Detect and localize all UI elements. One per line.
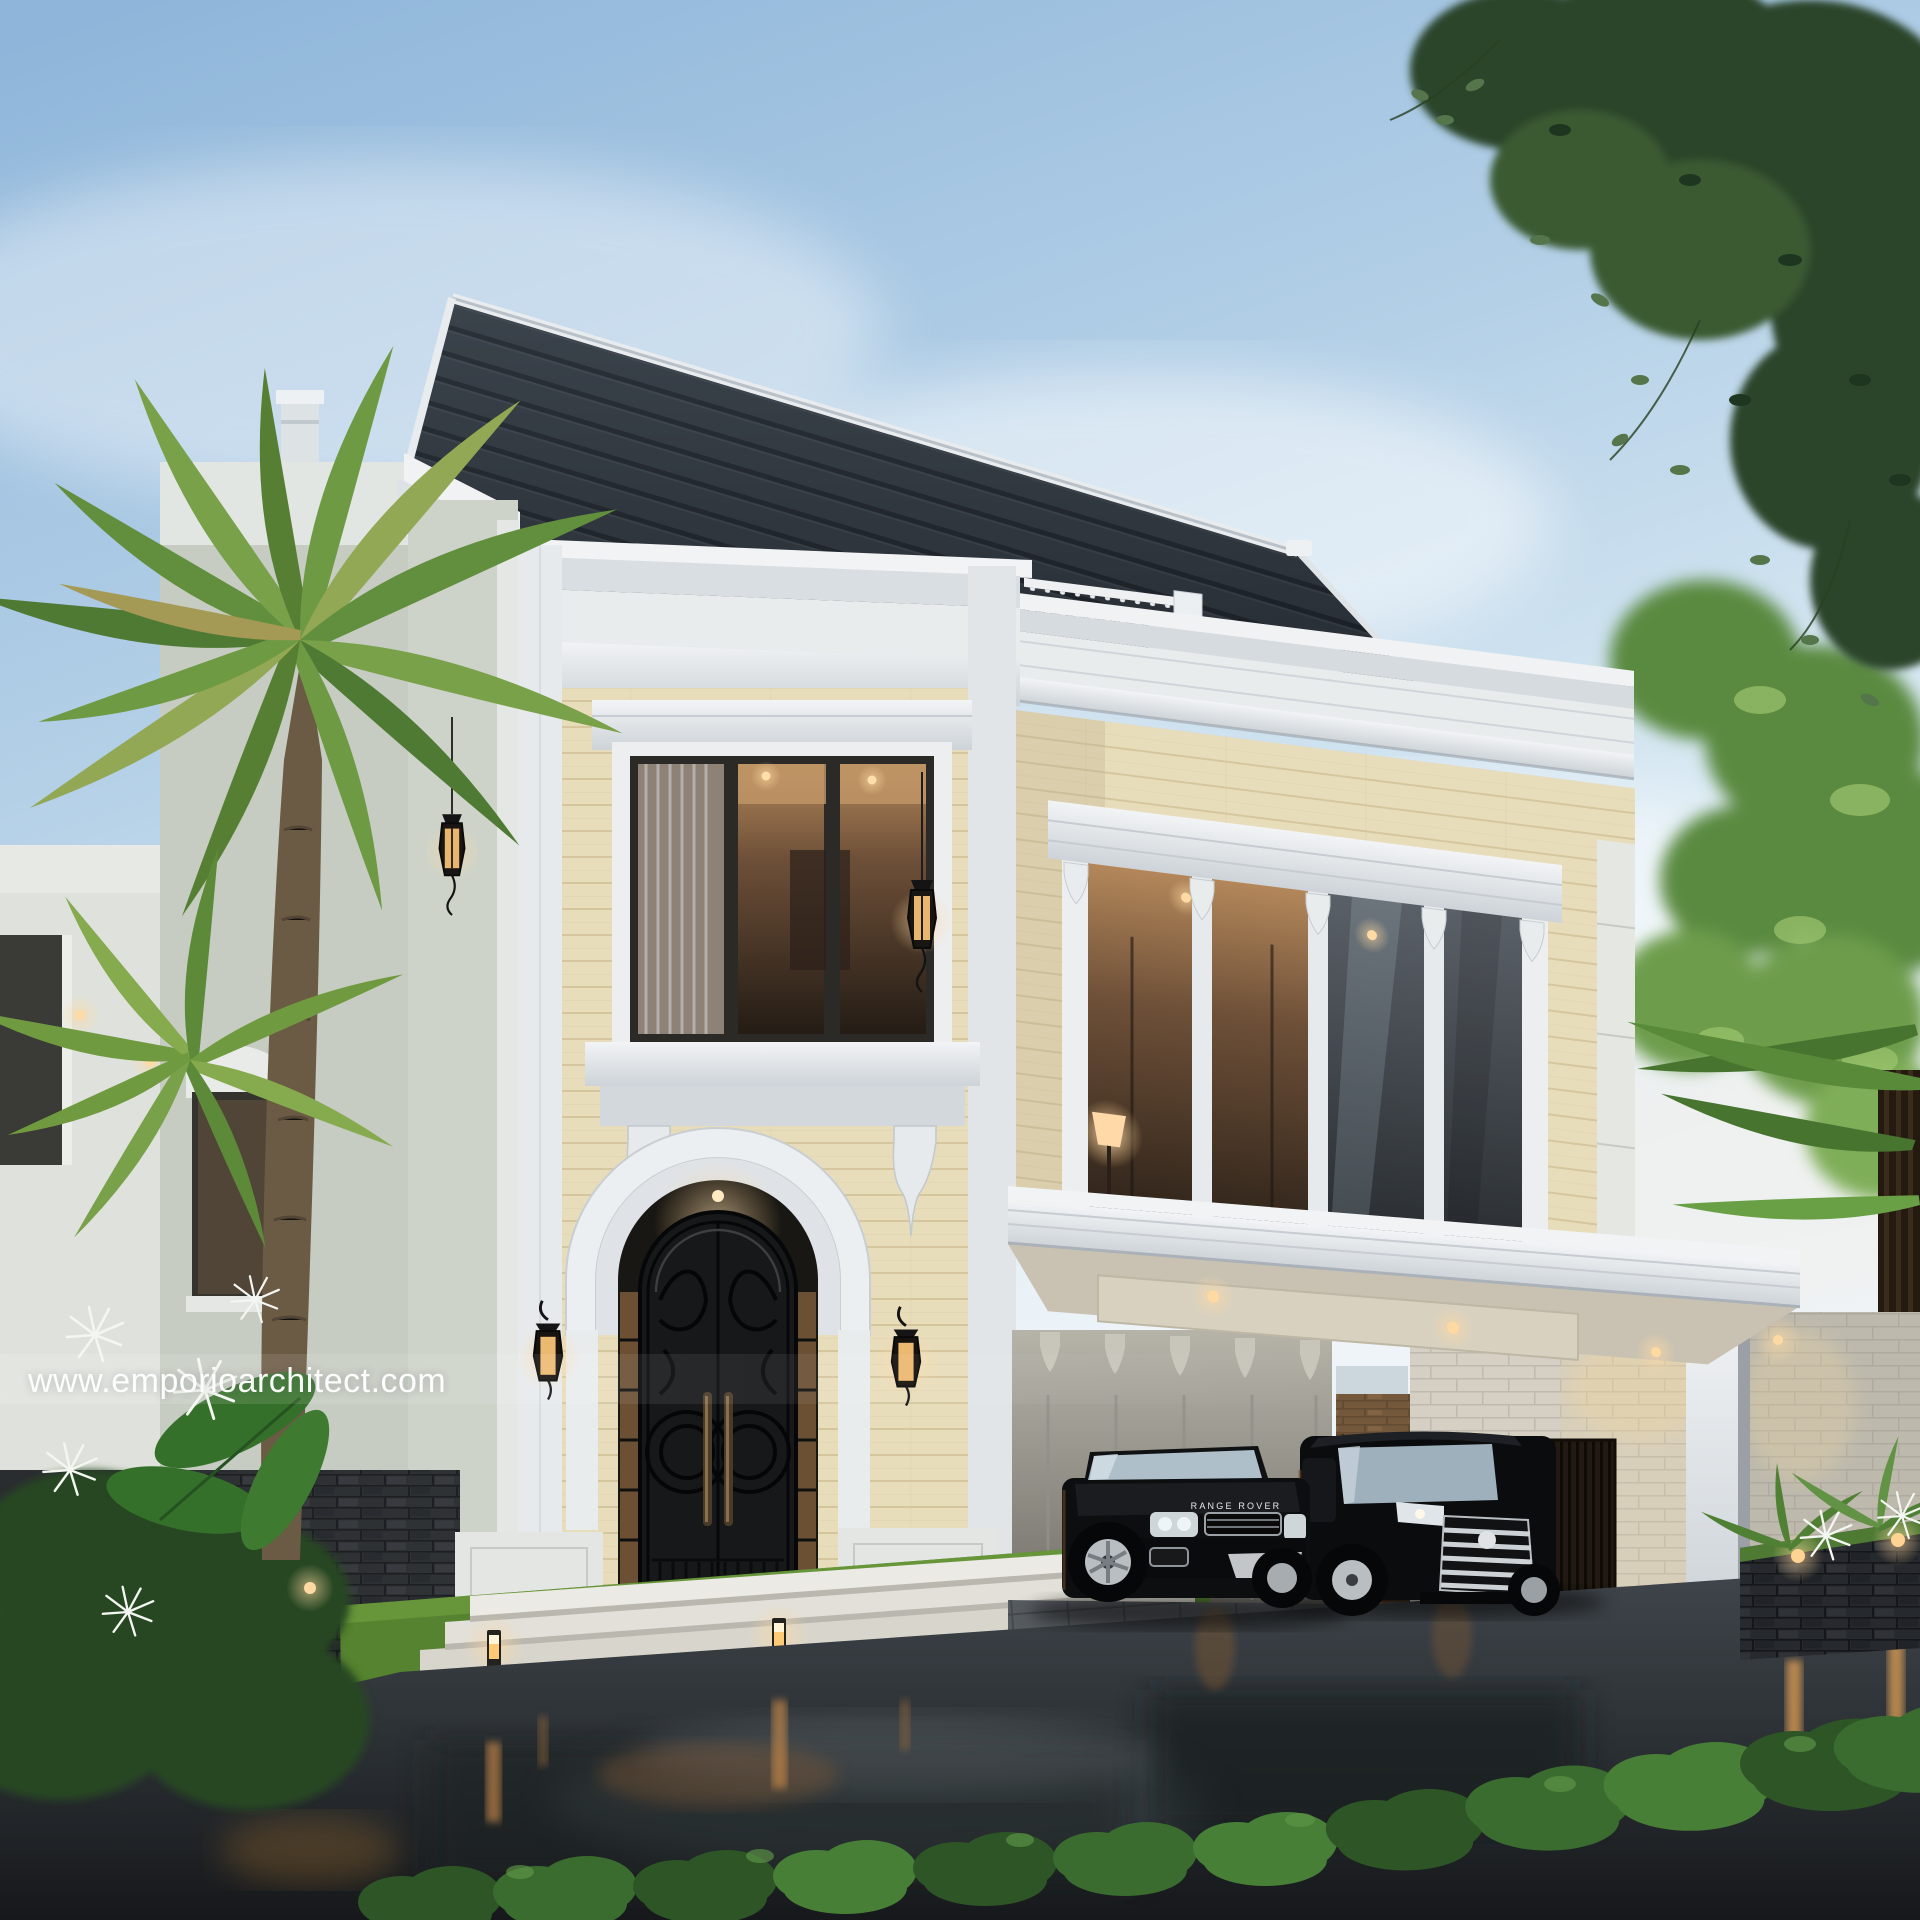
vehicle-alphard [1300,1431,1560,1616]
render-canvas: RANGE ROVER [0,0,1920,1920]
tower-window [592,700,972,1048]
architectural-render: RANGE ROVER [0,0,1920,1920]
neighbor-house [0,845,178,1560]
rr-grille [1205,1513,1281,1535]
tower-pilaster-right [968,566,1016,1686]
vehicles: RANGE ROVER [1030,1431,1605,1629]
watermark-text: www.emporioarchitect.com [28,1362,446,1400]
suv-badge-text: RANGE ROVER [1191,1501,1282,1511]
